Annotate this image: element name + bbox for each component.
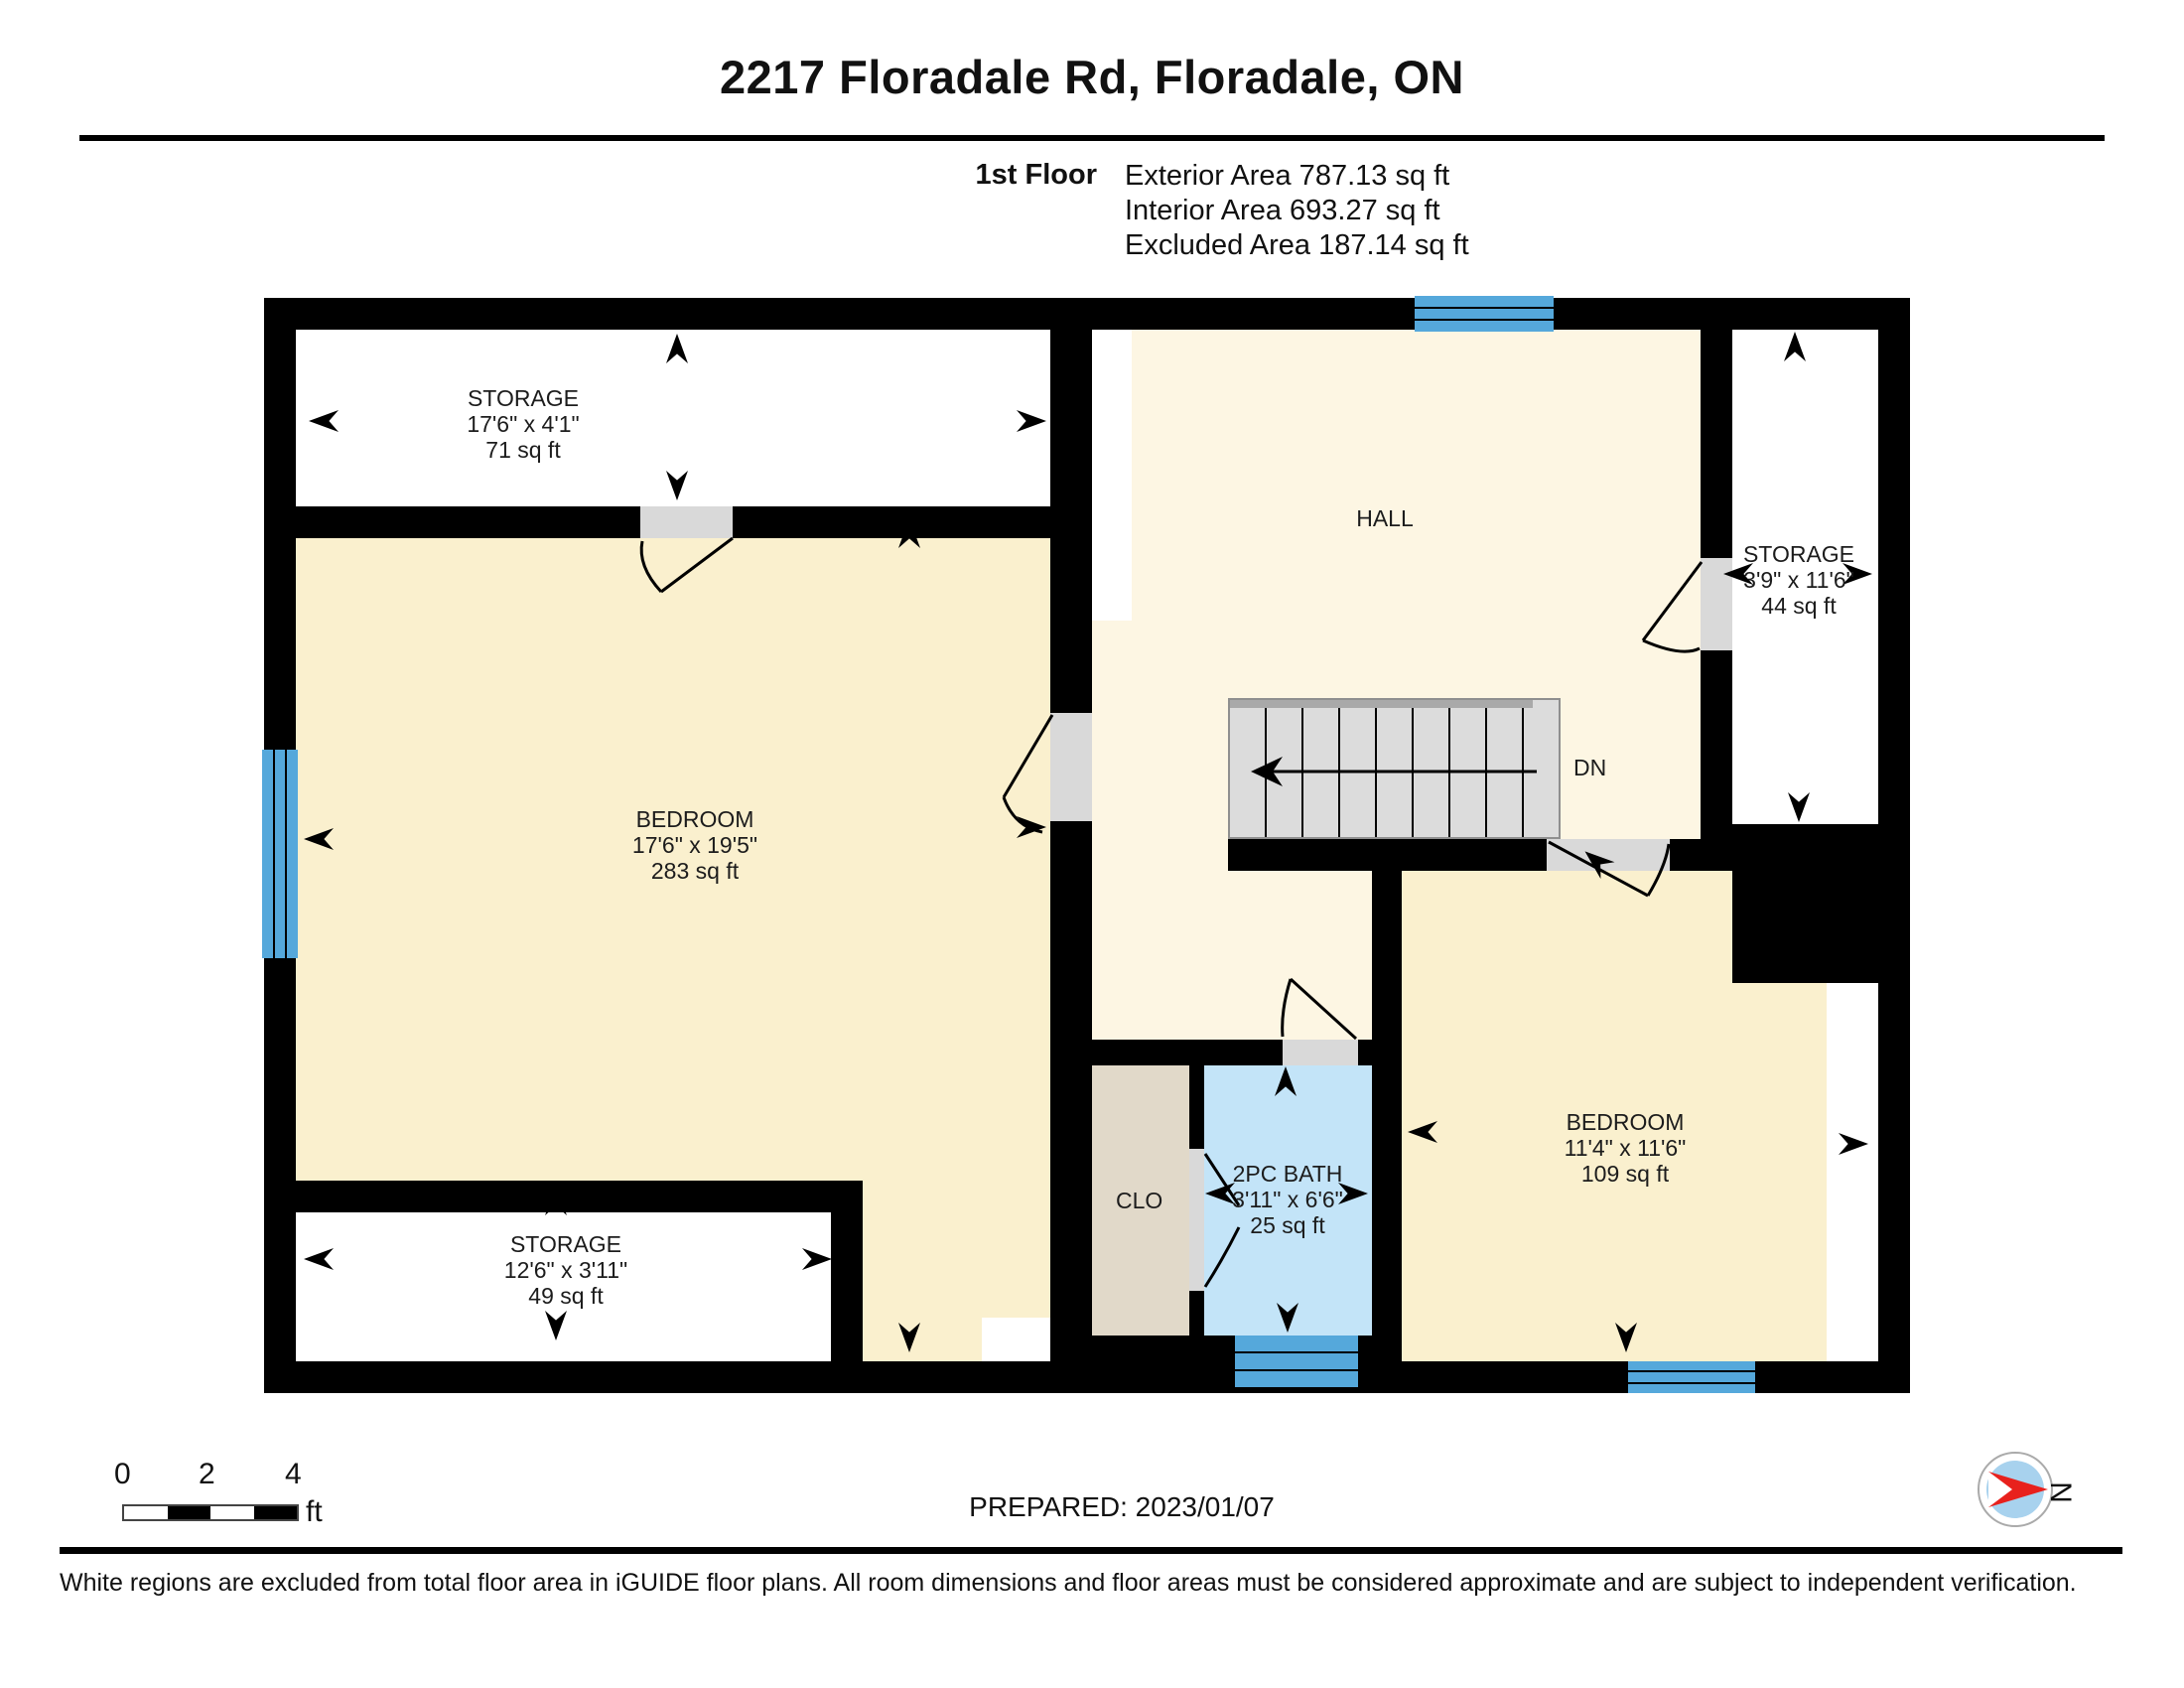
closet-label: CLO	[1116, 1188, 1162, 1214]
bath-door-opening	[1283, 1040, 1358, 1065]
prepared-date: PREPARED: 2023/01/07	[60, 1491, 2184, 1523]
storage-topleft-door-opening	[640, 506, 733, 538]
hall-label: HALL	[1266, 505, 1504, 531]
bedroom-right-label: BEDROOM11'4" x 11'6"109 sq ft	[1506, 1109, 1744, 1187]
scale-tick-4: 4	[285, 1458, 302, 1491]
bedroom-right-window	[1628, 1361, 1755, 1393]
bedroom-left-door-opening	[1050, 713, 1092, 821]
storage-bottomleft-label: STORAGE12'6" x 3'11"49 sq ft	[447, 1231, 685, 1309]
bedroom-left-label: BEDROOM17'6" x 19'5"283 sq ft	[576, 806, 814, 884]
excluded-area: Excluded Area 187.14 sq ft	[1125, 228, 1469, 263]
stairs-dn-label: DN	[1573, 755, 1606, 781]
area-summary: Exterior Area 787.13 sq ft Interior Area…	[1125, 159, 1469, 263]
footer-divider	[60, 1547, 2122, 1554]
scale-tick-2: 2	[199, 1458, 215, 1491]
bath-label: 2PC BATH3'11" x 6'6"25 sq ft	[1168, 1161, 1407, 1238]
excluded-notch	[982, 1318, 1050, 1361]
bath-window	[1235, 1336, 1358, 1387]
interior-area: Interior Area 693.27 sq ft	[1125, 194, 1469, 228]
exterior-area: Exterior Area 787.13 sq ft	[1125, 159, 1469, 194]
excluded-strip-right	[1827, 983, 1878, 1361]
compass-north-label: N	[2043, 1481, 2077, 1503]
staircase	[1228, 698, 1561, 839]
bedroom-left-window	[262, 750, 298, 958]
hall-excluded-strip	[1092, 330, 1132, 621]
storage-topright-label: STORAGE3'9" x 11'6"44 sq ft	[1680, 541, 1918, 619]
wall-under-stairs	[1228, 839, 1372, 871]
floor-label: 1st Floor	[874, 159, 1097, 192]
storage-topleft-label: STORAGE17'6" x 4'1"71 sq ft	[404, 385, 642, 463]
bedroom-right-door-opening	[1547, 839, 1670, 871]
staircase-rail	[1230, 700, 1533, 708]
bedroom-right-room-upper	[1402, 871, 1732, 983]
title-divider	[79, 135, 2105, 141]
hall-window	[1415, 296, 1554, 332]
disclaimer-text: White regions are excluded from total fl…	[60, 1569, 2164, 1598]
scale-tick-0: 0	[114, 1458, 131, 1491]
page-title: 2217 Floradale Rd, Floradale, ON	[0, 50, 2184, 104]
